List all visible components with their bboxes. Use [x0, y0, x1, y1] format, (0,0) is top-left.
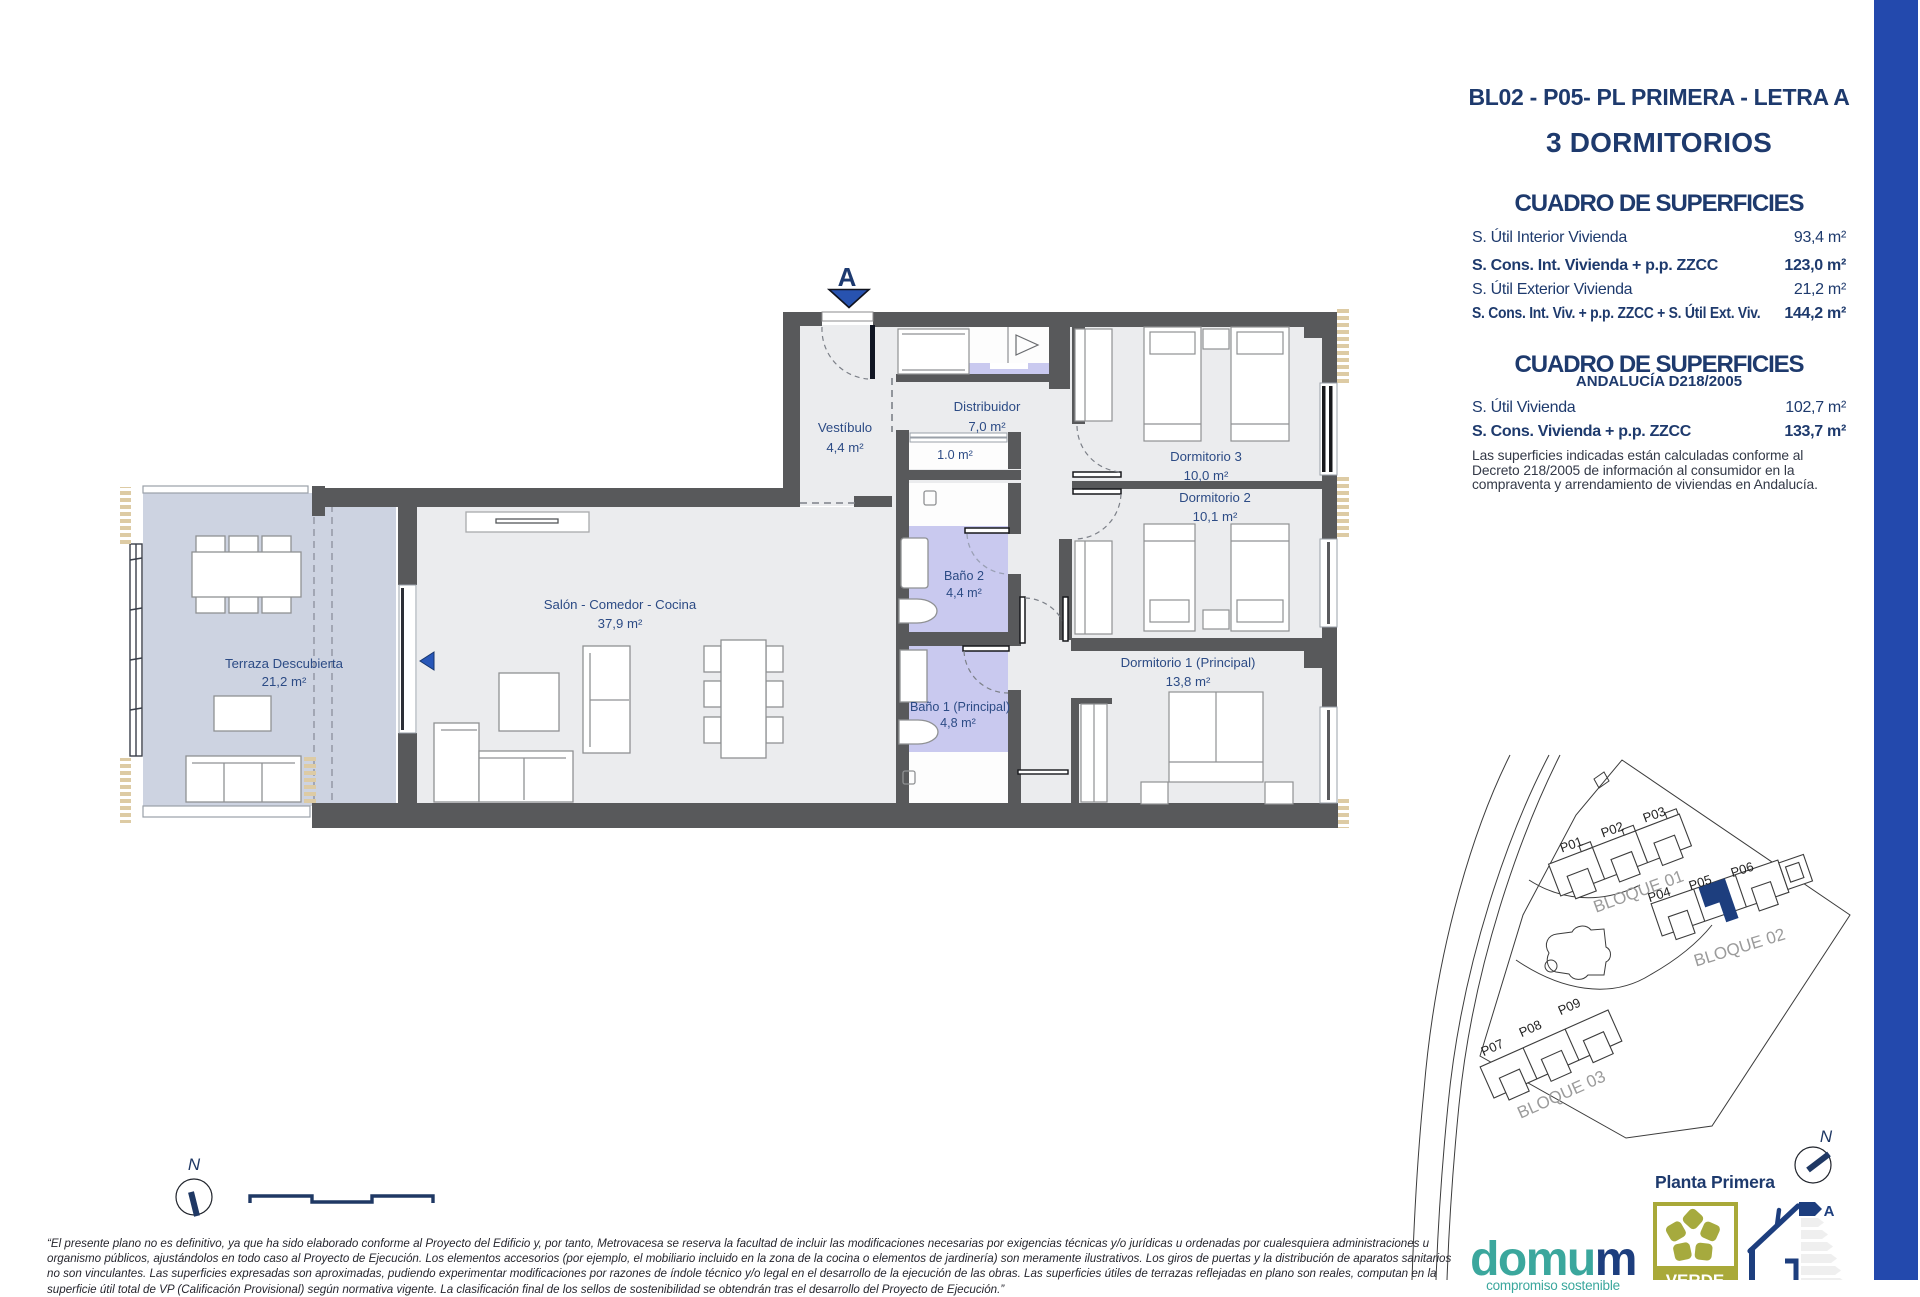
svg-text:Baño 2: Baño 2	[944, 569, 984, 583]
svg-text:Distribuidor: Distribuidor	[954, 399, 1021, 414]
svg-text:A: A	[838, 262, 857, 292]
svg-text:Dormitorio 2: Dormitorio 2	[1179, 490, 1251, 505]
svg-text:13,8 m²: 13,8 m²	[1166, 674, 1211, 689]
svg-text:P08: P08	[1517, 1017, 1544, 1040]
svg-text:Vestíbulo: Vestíbulo	[818, 420, 872, 435]
svg-text:21,2 m²: 21,2 m²	[262, 674, 307, 689]
svg-text:A: A	[1824, 1203, 1835, 1220]
svg-text:VERDE: VERDE	[1666, 1271, 1725, 1280]
svg-text:1.0 m²: 1.0 m²	[937, 448, 973, 462]
svg-text:7,0 m²: 7,0 m²	[968, 419, 1006, 434]
svg-text:P09: P09	[1556, 995, 1583, 1018]
svg-text:37,9 m²: 37,9 m²	[598, 616, 643, 631]
svg-text:N: N	[1820, 1127, 1833, 1146]
svg-text:Salón - Comedor - Cocina: Salón - Comedor - Cocina	[544, 597, 697, 612]
svg-text:Dormitorio 1 (Principal): Dormitorio 1 (Principal)	[1121, 655, 1256, 670]
svg-text:Dormitorio 3: Dormitorio 3	[1170, 449, 1242, 464]
svg-text:Terraza Descubierta: Terraza Descubierta	[225, 656, 344, 671]
svg-text:10,1 m²: 10,1 m²	[1193, 509, 1238, 524]
svg-text:4,8 m²: 4,8 m²	[940, 716, 976, 730]
svg-text:P07: P07	[1479, 1036, 1506, 1059]
svg-text:4,4 m²: 4,4 m²	[826, 440, 864, 455]
svg-text:10,0 m²: 10,0 m²	[1184, 468, 1229, 483]
svg-text:4,4 m²: 4,4 m²	[946, 586, 982, 600]
svg-text:Baño 1 (Principal): Baño 1 (Principal)	[910, 700, 1010, 714]
svg-text:N: N	[188, 1155, 201, 1174]
